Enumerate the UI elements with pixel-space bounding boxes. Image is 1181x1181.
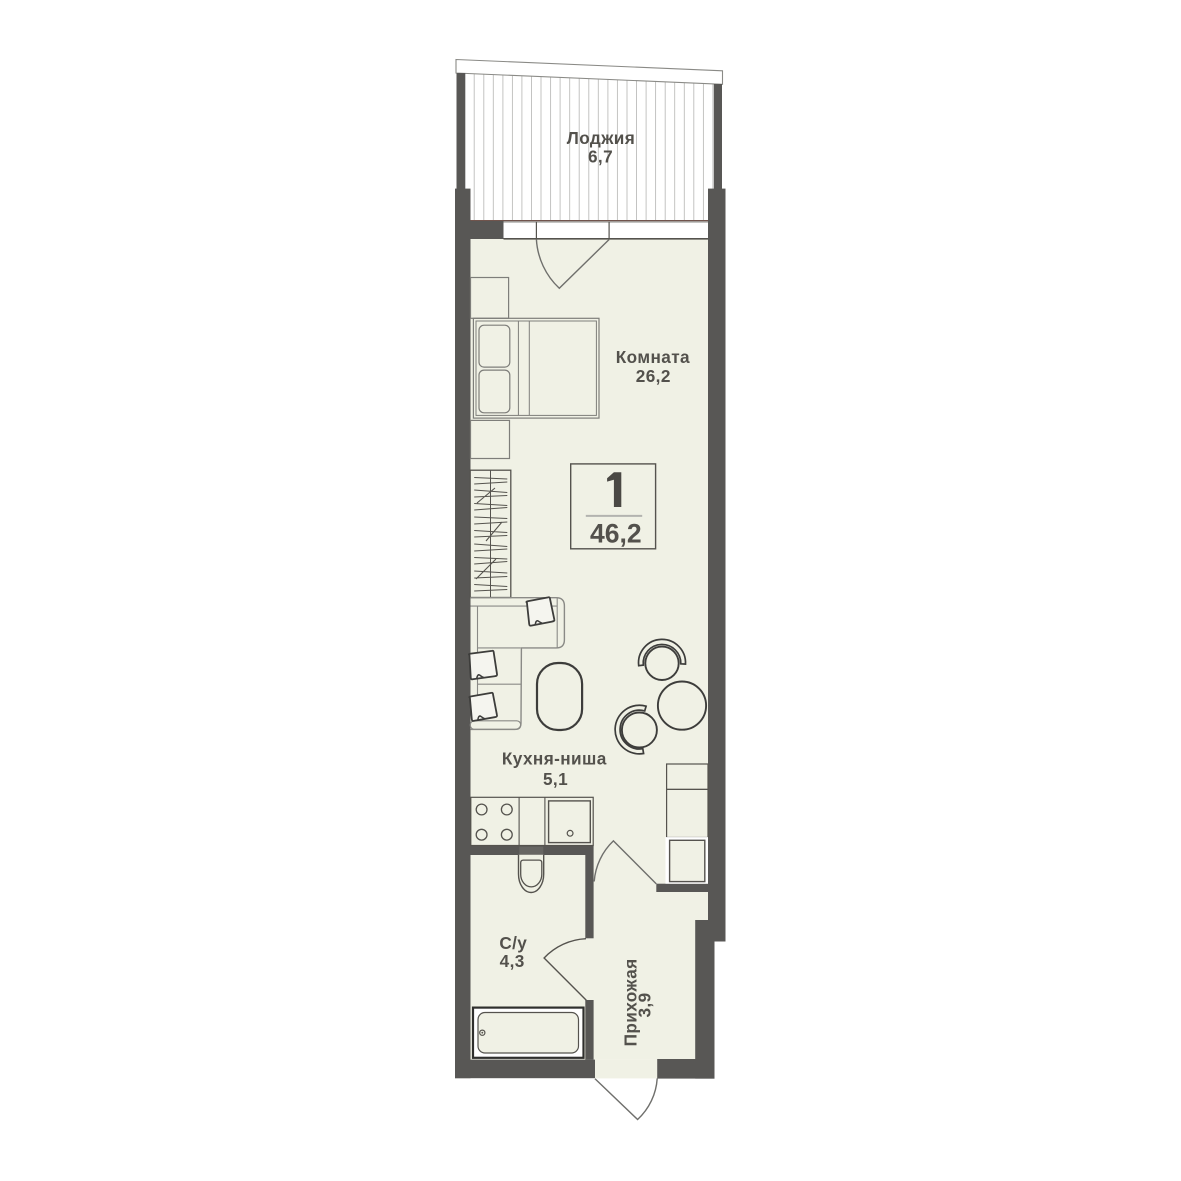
svg-text:5,1: 5,1 <box>543 769 568 789</box>
svg-text:Кухня-ниша: Кухня-ниша <box>502 748 607 768</box>
svg-text:Лоджия: Лоджия <box>567 128 635 148</box>
svg-text:Комната: Комната <box>616 347 690 367</box>
svg-text:26,2: 26,2 <box>636 366 671 386</box>
svg-text:3,9: 3,9 <box>635 992 655 1017</box>
svg-text:С/у: С/у <box>499 933 527 953</box>
svg-text:6,7: 6,7 <box>588 147 613 167</box>
svg-text:46,2: 46,2 <box>590 519 642 549</box>
svg-text:4,3: 4,3 <box>500 951 525 971</box>
